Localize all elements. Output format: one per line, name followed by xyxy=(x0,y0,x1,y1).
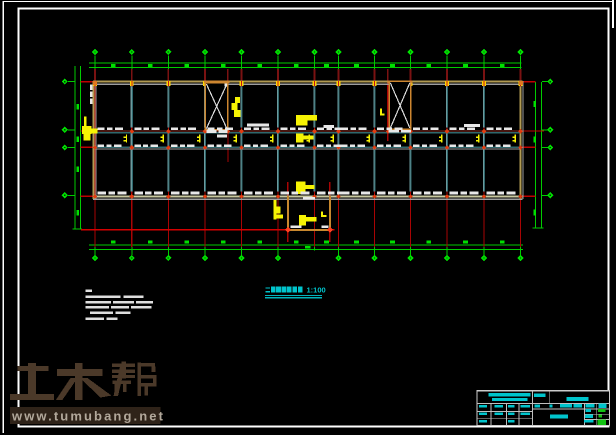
svg-text:www.tumubang.net: www.tumubang.net xyxy=(11,408,165,423)
svg-text:1:100: 1:100 xyxy=(307,286,326,295)
